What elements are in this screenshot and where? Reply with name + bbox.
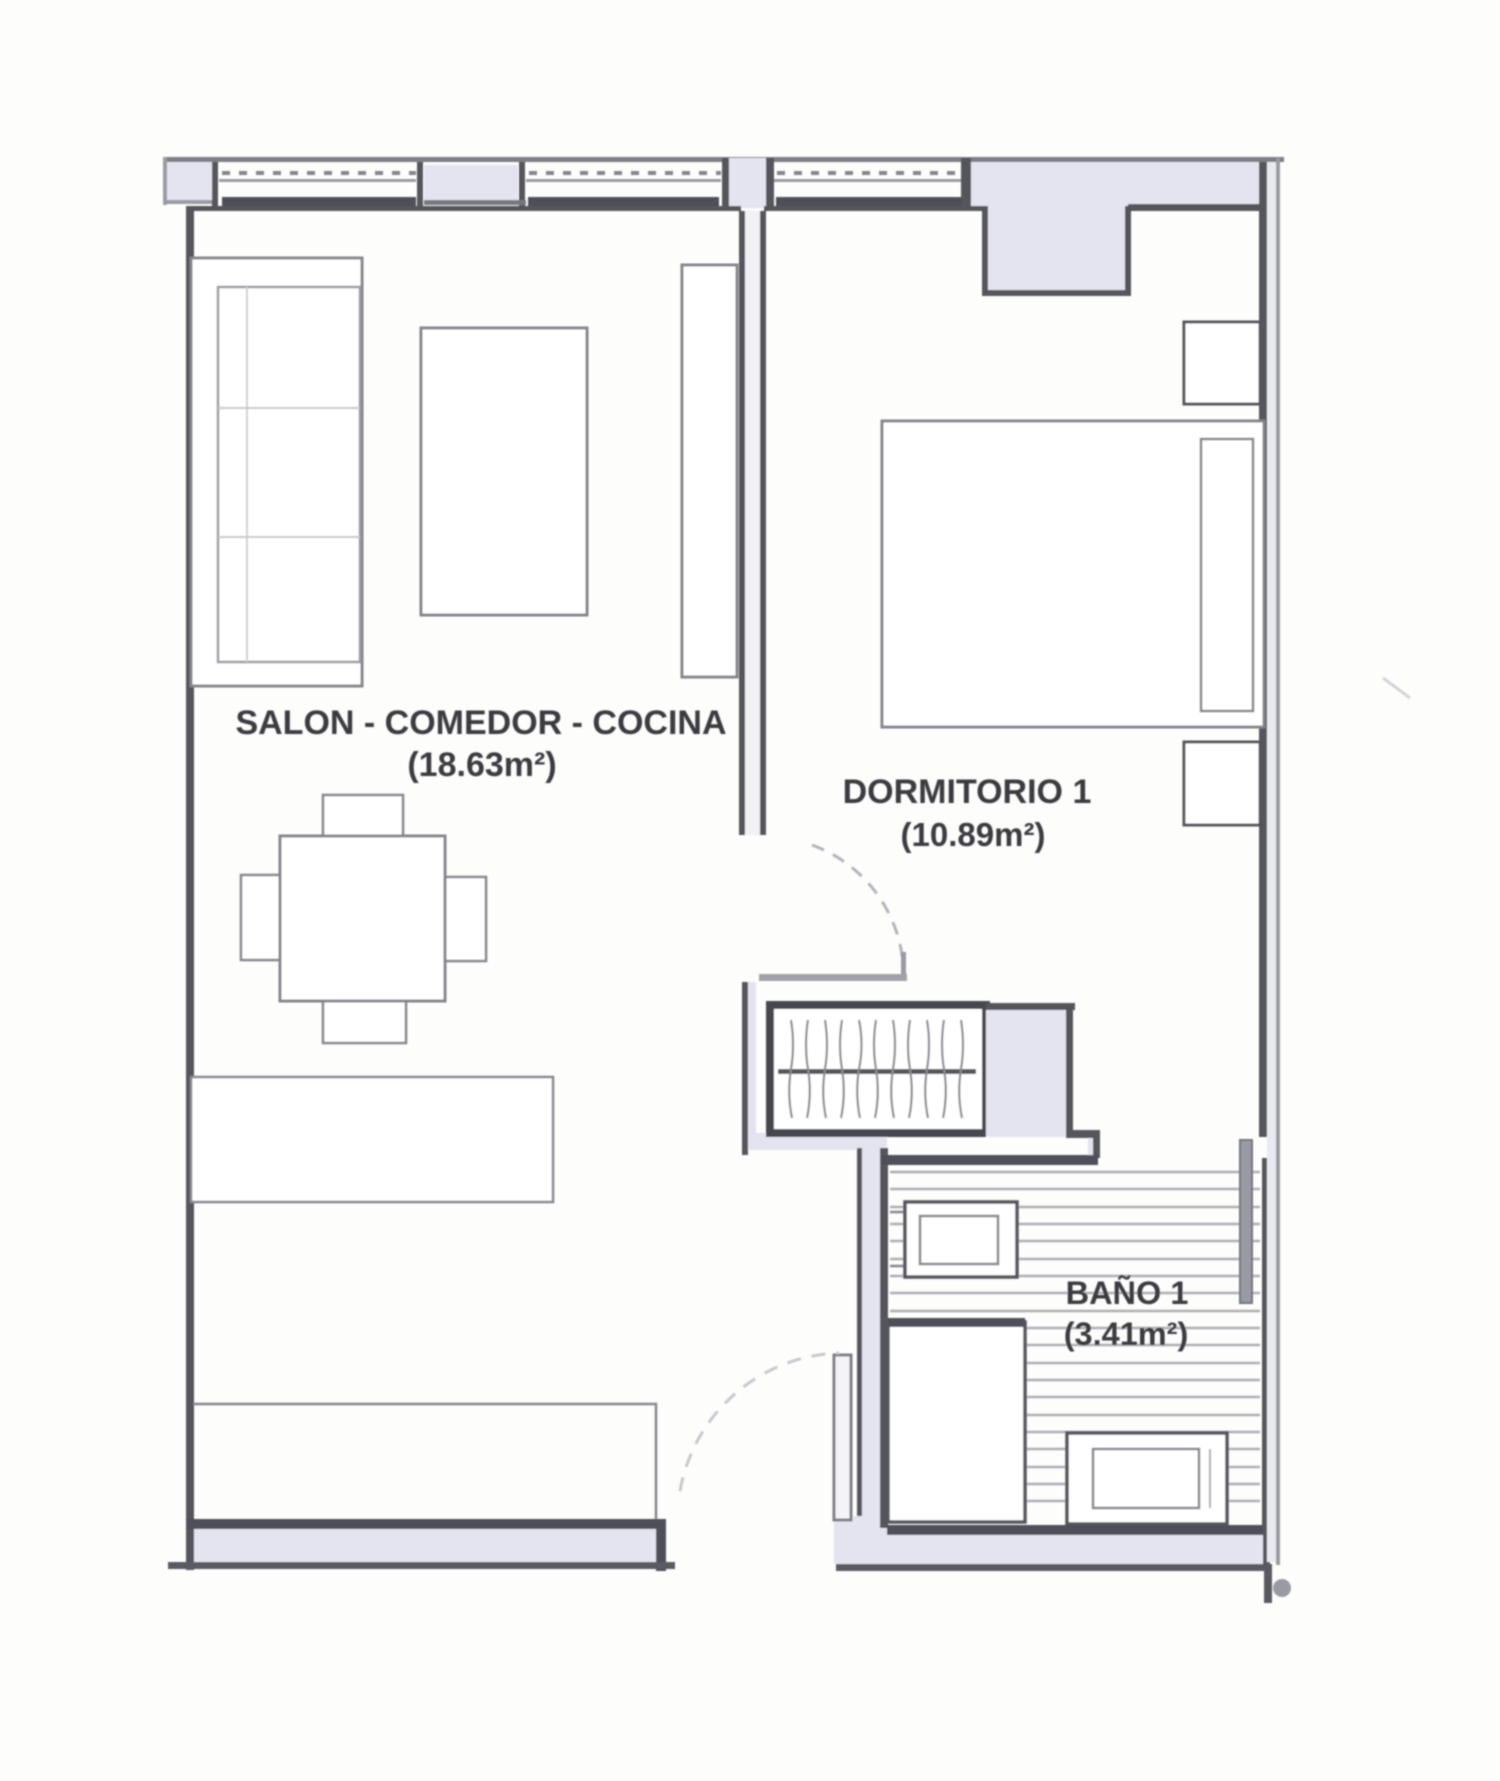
svg-text:BAÑO 1: BAÑO 1 — [1066, 1274, 1189, 1311]
svg-text:DORMITORIO 1: DORMITORIO 1 — [843, 773, 1092, 811]
svg-text:(10.89m²): (10.89m²) — [901, 816, 1046, 853]
svg-text:(3.41m²): (3.41m²) — [1064, 1316, 1189, 1352]
svg-text:(18.63m²): (18.63m²) — [407, 746, 556, 784]
svg-text:SALON - COMEDOR - COCINA: SALON - COMEDOR - COCINA — [235, 704, 726, 742]
